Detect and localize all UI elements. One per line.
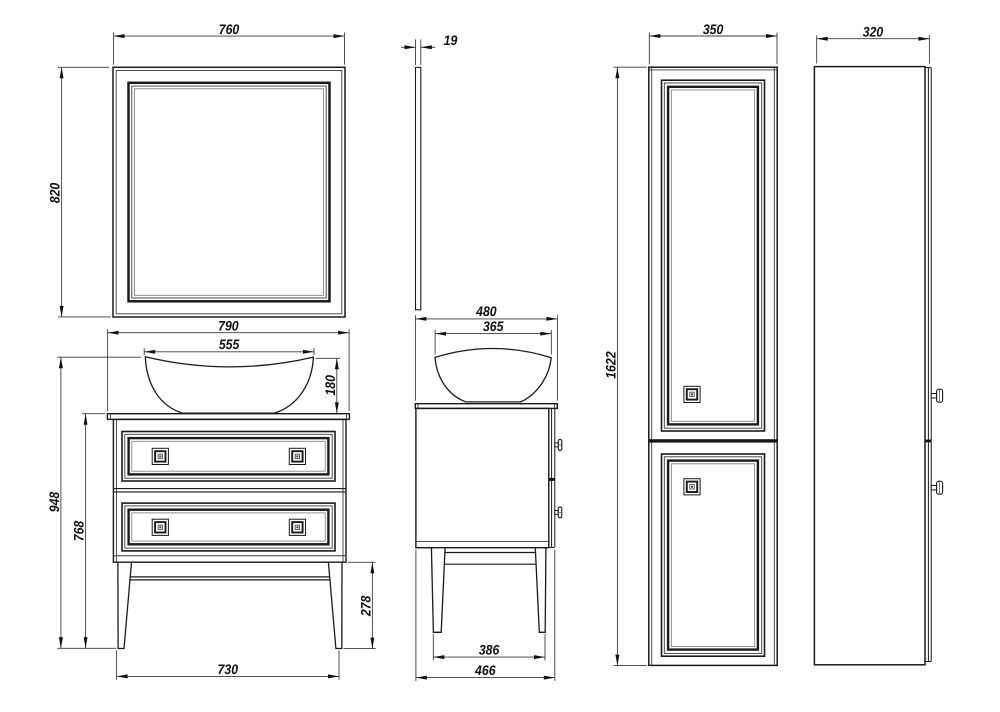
svg-text:555: 555 (219, 337, 240, 352)
svg-text:768: 768 (72, 520, 87, 541)
svg-text:386: 386 (479, 643, 500, 658)
svg-text:365: 365 (483, 319, 504, 334)
svg-text:350: 350 (703, 22, 724, 37)
svg-text:320: 320 (863, 24, 884, 39)
svg-text:820: 820 (48, 182, 63, 203)
svg-text:466: 466 (474, 663, 496, 678)
svg-text:19: 19 (444, 33, 458, 48)
svg-text:760: 760 (219, 22, 240, 37)
svg-text:480: 480 (475, 304, 497, 319)
svg-text:180: 180 (323, 375, 338, 396)
svg-text:730: 730 (218, 662, 239, 677)
svg-text:278: 278 (359, 595, 374, 617)
svg-text:948: 948 (47, 491, 62, 512)
svg-text:790: 790 (218, 318, 239, 333)
svg-text:1622: 1622 (604, 351, 619, 379)
